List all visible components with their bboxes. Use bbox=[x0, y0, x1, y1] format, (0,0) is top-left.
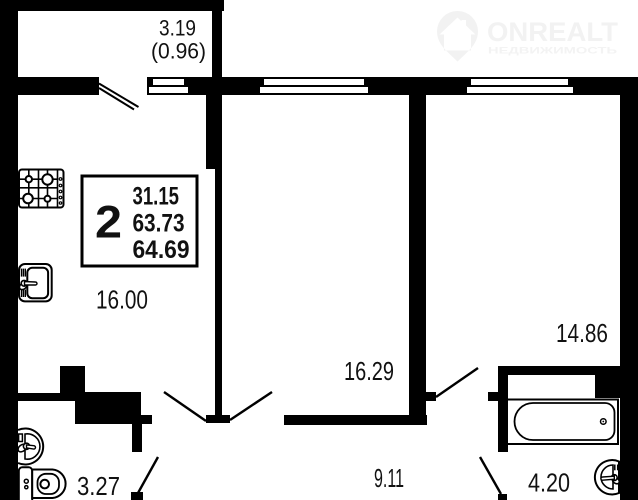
svg-text:14.86: 14.86 bbox=[556, 318, 608, 348]
svg-text:63.73: 63.73 bbox=[133, 210, 185, 238]
svg-text:31.15: 31.15 bbox=[133, 183, 180, 211]
svg-text:3.27: 3.27 bbox=[77, 471, 120, 500]
svg-text:НЕДВИЖИМОСТЬ: НЕДВИЖИМОСТЬ bbox=[488, 46, 617, 57]
svg-text:4.20: 4.20 bbox=[528, 468, 570, 498]
svg-text:16.29: 16.29 bbox=[344, 356, 394, 386]
svg-text:2: 2 bbox=[95, 197, 122, 248]
svg-text:3.19: 3.19 bbox=[159, 16, 196, 41]
svg-text:16.00: 16.00 bbox=[96, 285, 148, 315]
svg-text:64.69: 64.69 bbox=[133, 236, 190, 264]
svg-text:(0.96): (0.96) bbox=[151, 39, 206, 64]
svg-text:9.11: 9.11 bbox=[374, 463, 404, 493]
svg-text:ONREALT: ONREALT bbox=[487, 17, 619, 47]
